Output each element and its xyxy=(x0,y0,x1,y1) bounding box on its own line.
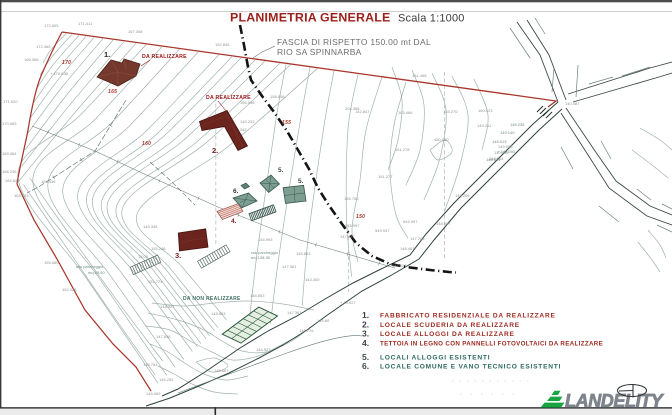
svg-text:152.025: 152.025 xyxy=(62,287,77,292)
svg-text:LOCALE ALLOGGI DA REALIZZARE: LOCALE ALLOGGI DA REALIZZARE xyxy=(380,331,515,338)
svg-text:148.853: 148.853 xyxy=(250,293,265,298)
svg-text:149.211: 149.211 xyxy=(477,123,492,128)
svg-text:1.: 1. xyxy=(362,310,369,320)
svg-text:146.993: 146.993 xyxy=(258,237,273,242)
svg-text:143.300: 143.300 xyxy=(305,277,320,282)
svg-text:158.908: 158.908 xyxy=(270,94,285,99)
svg-text:4.: 4. xyxy=(362,338,369,348)
svg-text:169.366: 169.366 xyxy=(24,57,39,62)
svg-text:mq 63.50: mq 63.50 xyxy=(88,270,105,275)
svg-text:145.252: 145.252 xyxy=(159,377,174,382)
svg-text:155: 155 xyxy=(282,120,291,126)
svg-text:Scala 1:1000: Scala 1:1000 xyxy=(398,13,465,25)
svg-text:147.927: 147.927 xyxy=(340,234,355,239)
svg-text:DA REALIZZARE: DA REALIZZARE xyxy=(206,95,251,101)
svg-text:142.847: 142.847 xyxy=(355,109,370,114)
svg-text:170: 170 xyxy=(62,60,71,66)
svg-text:3.: 3. xyxy=(175,251,181,260)
svg-text:147.361: 147.361 xyxy=(282,264,297,269)
svg-text:1.: 1. xyxy=(104,50,110,59)
svg-text:140.487: 140.487 xyxy=(565,101,580,106)
svg-text:LOCALI ALLOGGI ESISTENTI: LOCALI ALLOGGI ESISTENTI xyxy=(380,354,490,361)
svg-text:149.233: 149.233 xyxy=(240,119,255,124)
svg-text:164.620: 164.620 xyxy=(5,178,20,183)
svg-text:549.937: 549.937 xyxy=(375,228,390,233)
svg-text:+ 170.638: + 170.638 xyxy=(50,71,69,76)
svg-text:545.997: 545.997 xyxy=(345,223,360,228)
svg-text:153.270: 153.270 xyxy=(443,109,458,114)
svg-text:RIO SA SPINNARBA: RIO SA SPINNARBA xyxy=(277,47,362,57)
svg-text:151.774: 151.774 xyxy=(148,279,163,284)
svg-text:146.754: 146.754 xyxy=(143,362,158,367)
svg-text:148.776: 148.776 xyxy=(299,328,314,333)
svg-text:163.503: 163.503 xyxy=(14,193,29,198)
svg-text:FABBRICATO RESIDENZIALE DA REA: FABBRICATO RESIDENZIALE DA REALIZZARE xyxy=(380,313,556,320)
svg-text:sito parcheggio: sito parcheggio xyxy=(76,264,104,269)
svg-text:149.338: 149.338 xyxy=(143,224,158,229)
svg-text:167.308: 167.308 xyxy=(128,29,143,34)
svg-text:149.206: 149.206 xyxy=(455,193,470,198)
svg-text:DA REALIZZARE: DA REALIZZARE xyxy=(142,54,187,60)
svg-text:169.484: 169.484 xyxy=(2,151,17,156)
svg-text:FASCIA DI RISPETTO 150.00 mt D: FASCIA DI RISPETTO 150.00 mt DAL xyxy=(277,37,431,47)
svg-text:+ 14.927: + 14.927 xyxy=(340,300,356,305)
svg-text:147.709: 147.709 xyxy=(410,236,425,241)
svg-text:5.: 5. xyxy=(298,178,304,185)
svg-text:15.05: 15.05 xyxy=(138,254,149,259)
svg-text:163.466: 163.466 xyxy=(398,110,413,115)
svg-text:148.236: 148.236 xyxy=(510,122,525,127)
svg-text:148.467: 148.467 xyxy=(400,246,415,251)
svg-text:PLANIMETRIA GENERALE: PLANIMETRIA GENERALE xyxy=(230,11,391,25)
svg-text:164.416: 164.416 xyxy=(41,179,56,184)
svg-text:147.927: 147.927 xyxy=(392,263,407,268)
svg-text:TETTOIA IN LEGNO CON PANNELLI: TETTOIA IN LEGNO CON PANNELLI FOTOVOLTAI… xyxy=(380,340,603,347)
svg-text:172.465: 172.465 xyxy=(36,44,51,49)
svg-text:155.753: 155.753 xyxy=(344,196,359,201)
svg-text:171.411: 171.411 xyxy=(78,21,93,26)
svg-text:145.069: 145.069 xyxy=(146,391,161,396)
svg-text:148.513: 148.513 xyxy=(492,139,507,144)
svg-text:LOCALE SCUDERIA DA REALIZZARE: LOCALE SCUDERIA DA REALIZZARE xyxy=(380,322,520,329)
svg-text:148.997: 148.997 xyxy=(436,221,451,226)
svg-text:155.060: 155.060 xyxy=(44,260,59,265)
svg-text:4.: 4. xyxy=(231,218,237,225)
svg-text:161.498: 161.498 xyxy=(412,73,427,78)
svg-text:149.140: 149.140 xyxy=(500,130,515,135)
svg-text:148.921: 148.921 xyxy=(160,304,175,309)
svg-text:148.653: 148.653 xyxy=(211,311,226,316)
svg-text:LOCALE COMUNE E VANO TECNICO E: LOCALE COMUNE E VANO TECNICO ESISTENTI xyxy=(380,364,561,371)
svg-text:545.997: 545.997 xyxy=(403,219,418,224)
svg-text:5.: 5. xyxy=(278,167,284,174)
svg-text:170.083: 170.083 xyxy=(2,121,17,126)
svg-text:153.248: 153.248 xyxy=(151,246,166,251)
svg-text:160.423: 160.423 xyxy=(478,108,493,113)
svg-text:171.920: 171.920 xyxy=(3,99,18,104)
svg-text:2.: 2. xyxy=(212,146,218,155)
svg-text:160: 160 xyxy=(142,141,151,147)
svg-text:172.605: 172.605 xyxy=(44,23,59,28)
svg-text:150: 150 xyxy=(356,214,365,220)
svg-text:147.838: 147.838 xyxy=(156,334,171,339)
svg-text:145.893: 145.893 xyxy=(296,251,311,256)
svg-text:168.236: 168.236 xyxy=(2,169,17,174)
svg-text:165: 165 xyxy=(108,89,117,95)
svg-text:6.: 6. xyxy=(233,188,239,195)
svg-text:145.80: 145.80 xyxy=(317,318,330,323)
svg-text:6.: 6. xyxy=(362,361,369,371)
svg-text:+ 149.050: + 149.050 xyxy=(497,149,516,154)
svg-text:LANDELITY: LANDELITY xyxy=(565,391,665,411)
svg-text:450.060: 450.060 xyxy=(434,137,449,142)
svg-text:147.361: 147.361 xyxy=(287,310,302,315)
svg-text:mq 138.35: mq 138.35 xyxy=(251,255,271,260)
svg-text:151.277: 151.277 xyxy=(378,174,393,179)
svg-text:145.667: 145.667 xyxy=(214,368,229,373)
svg-text:148.514: 148.514 xyxy=(486,157,501,162)
svg-text:152.845: 152.845 xyxy=(215,42,230,47)
svg-text:DA NON REALIZZARE: DA NON REALIZZARE xyxy=(183,296,241,302)
svg-text:144.927: 144.927 xyxy=(256,347,271,352)
svg-text:151.278: 151.278 xyxy=(395,147,410,152)
